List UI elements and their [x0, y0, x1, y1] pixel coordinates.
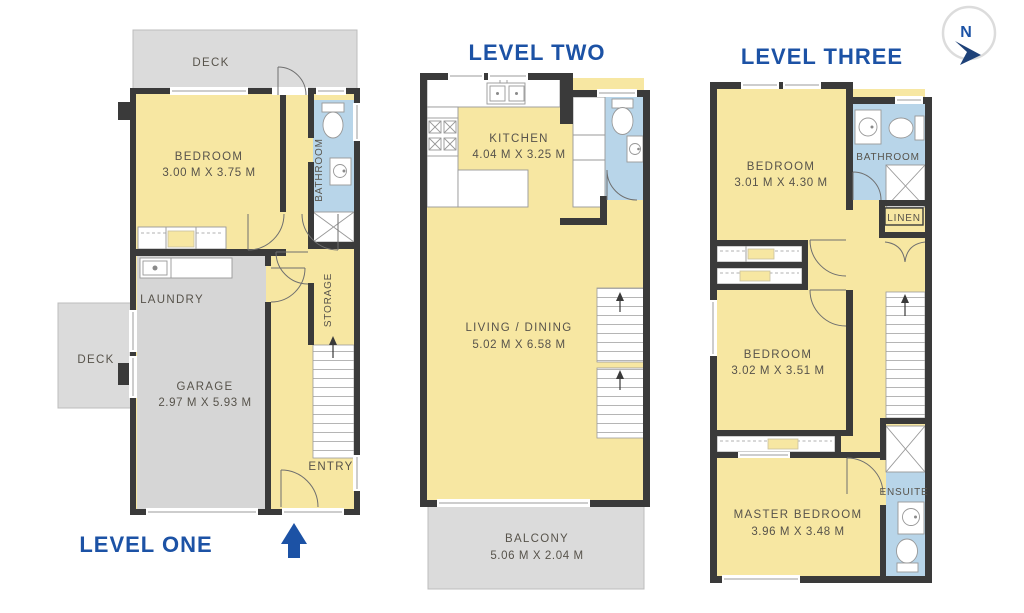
kitchen-label: KITCHEN — [489, 133, 549, 145]
level-two-title: LEVEL TWO — [469, 40, 606, 65]
bedroom-front-dims: 3.01 M X 4.30 M — [734, 177, 827, 189]
kitchen-sink — [487, 79, 525, 104]
ensuite-shower — [886, 426, 925, 472]
wc-toilet — [612, 99, 633, 135]
ensuite-sink — [898, 502, 924, 534]
bathroom3-sink — [855, 110, 881, 144]
compass: N — [943, 7, 995, 65]
ensuite-toilet — [897, 539, 919, 572]
bedroom-middle-dims: 3.02 M X 3.51 M — [731, 365, 824, 377]
garage-label: GARAGE — [176, 381, 233, 393]
level-two-plan: KITCHEN 4.04 M X 3.25 M LIVING / DINING … — [420, 40, 650, 589]
shower — [313, 212, 354, 242]
laundry-label: LAUNDRY — [140, 294, 204, 306]
deck-top — [133, 30, 357, 92]
entry-label: ENTRY — [308, 461, 353, 473]
compass-north-label: N — [960, 24, 972, 41]
storage-label: STORAGE — [323, 273, 334, 327]
level-three-title: LEVEL THREE — [741, 44, 903, 69]
linen-label: LINEN — [887, 213, 920, 224]
stove — [427, 118, 458, 156]
ensuite-label: ENSUITE — [880, 487, 929, 498]
stairs-level-three — [886, 292, 925, 418]
bathroom3-label: BATHROOM — [856, 152, 919, 163]
garage-dims: 2.97 M X 5.93 M — [158, 397, 251, 409]
wc-sink — [627, 136, 643, 162]
living-dining-label: LIVING / DINING — [465, 322, 572, 334]
level-three-plan: BEDROOM 3.01 M X 4.30 M BATHROOM LINEN B… — [709, 44, 932, 583]
bathroom-label: BATHROOM — [314, 138, 325, 201]
floorplan-svg: DECK DECK BEDROOM 3.00 M X 3.75 M BATHRO… — [0, 0, 1024, 613]
bedroom-front-label: BEDROOM — [747, 161, 816, 173]
entry-direction-arrow — [281, 523, 307, 558]
level-one-plan: DECK DECK BEDROOM 3.00 M X 3.75 M BATHRO… — [58, 30, 361, 558]
bedroom-wardrobe — [138, 227, 226, 249]
deck-left-label: DECK — [77, 354, 114, 366]
deck-top-label: DECK — [192, 57, 229, 69]
toilet — [322, 103, 344, 138]
balcony-label: BALCONY — [505, 533, 569, 545]
balcony-area — [428, 506, 644, 589]
stairs-level-one — [313, 336, 354, 458]
bedroom-dims: 3.00 M X 3.75 M — [162, 167, 255, 179]
laundry-counter — [140, 258, 232, 278]
level-one-title: LEVEL ONE — [79, 532, 212, 557]
bathroom-sink — [330, 158, 351, 185]
master-bedroom-dims: 3.96 M X 3.48 M — [751, 526, 844, 538]
bedroom-middle-label: BEDROOM — [744, 349, 813, 361]
wardrobe-master — [717, 436, 835, 452]
living-dining-dims: 5.02 M X 6.58 M — [472, 339, 565, 351]
bedroom-label: BEDROOM — [175, 151, 244, 163]
floorplan-page: DECK DECK BEDROOM 3.00 M X 3.75 M BATHRO… — [0, 0, 1024, 613]
master-bedroom-label: MASTER BEDROOM — [734, 509, 863, 521]
bathroom3-toilet — [889, 116, 924, 140]
balcony-dims: 5.06 M X 2.04 M — [490, 550, 583, 562]
kitchen-dims: 4.04 M X 3.25 M — [472, 149, 565, 161]
pantry — [573, 97, 605, 207]
